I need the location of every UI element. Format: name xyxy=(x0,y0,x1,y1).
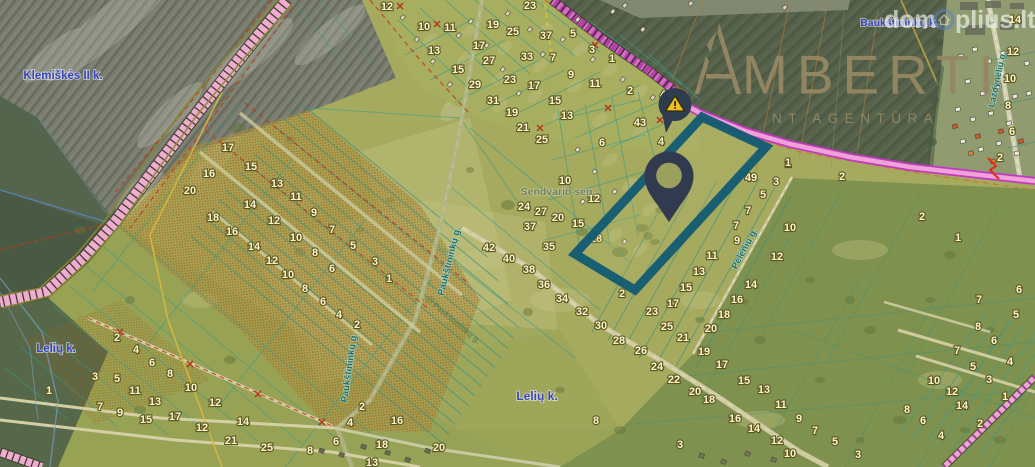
svg-text:20: 20 xyxy=(689,386,701,398)
svg-text:7: 7 xyxy=(550,52,556,64)
svg-text:17: 17 xyxy=(716,359,728,371)
svg-text:10: 10 xyxy=(784,448,796,460)
svg-text:14: 14 xyxy=(745,279,758,291)
svg-text:4: 4 xyxy=(938,430,945,442)
svg-text:3: 3 xyxy=(92,371,98,383)
svg-text:17: 17 xyxy=(169,411,181,423)
svg-text:7: 7 xyxy=(976,294,982,306)
svg-text:21: 21 xyxy=(225,435,237,447)
svg-text:13: 13 xyxy=(271,178,283,190)
svg-text:25: 25 xyxy=(507,26,519,38)
svg-text:23: 23 xyxy=(646,306,658,318)
svg-text:37: 37 xyxy=(540,30,552,42)
svg-text:22: 22 xyxy=(668,374,680,386)
svg-text:Klemiškės II k.: Klemiškės II k. xyxy=(23,70,102,82)
svg-text:18: 18 xyxy=(207,212,219,224)
svg-text:38: 38 xyxy=(523,264,535,276)
svg-text:16: 16 xyxy=(203,168,215,180)
svg-text:12: 12 xyxy=(1007,46,1019,58)
svg-text:6: 6 xyxy=(1009,126,1015,138)
svg-text:3: 3 xyxy=(677,439,683,451)
svg-text:2: 2 xyxy=(919,211,925,223)
svg-text:1: 1 xyxy=(609,53,615,65)
svg-text:15: 15 xyxy=(452,64,464,76)
svg-text:2: 2 xyxy=(619,288,625,300)
svg-text:17: 17 xyxy=(528,80,540,92)
svg-text:16: 16 xyxy=(731,294,743,306)
svg-text:6: 6 xyxy=(333,436,339,448)
svg-text:13: 13 xyxy=(428,45,440,57)
svg-text:11: 11 xyxy=(706,250,718,262)
svg-text:12: 12 xyxy=(196,422,208,434)
svg-text:27: 27 xyxy=(483,55,495,67)
svg-text:35: 35 xyxy=(543,241,555,253)
svg-text:40: 40 xyxy=(503,253,515,265)
svg-text:10: 10 xyxy=(784,222,796,234)
svg-text:12: 12 xyxy=(946,386,958,398)
svg-text:5: 5 xyxy=(1013,309,1019,321)
svg-text:2: 2 xyxy=(839,171,845,183)
svg-text:13: 13 xyxy=(366,457,378,467)
svg-text:24: 24 xyxy=(651,361,664,373)
svg-text:12: 12 xyxy=(209,397,221,409)
svg-text:19: 19 xyxy=(698,346,710,358)
svg-text:6: 6 xyxy=(599,137,605,149)
svg-text:20: 20 xyxy=(552,212,564,224)
svg-text:6: 6 xyxy=(991,335,997,347)
svg-text:25: 25 xyxy=(536,134,548,146)
svg-text:8: 8 xyxy=(307,445,313,457)
svg-text:31: 31 xyxy=(487,95,499,107)
svg-text:8: 8 xyxy=(1005,100,1011,112)
svg-text:12: 12 xyxy=(771,435,783,447)
svg-text:7: 7 xyxy=(812,425,818,437)
svg-text:2: 2 xyxy=(627,85,633,97)
svg-text:15: 15 xyxy=(572,218,584,230)
svg-text:2: 2 xyxy=(977,418,983,430)
svg-text:8: 8 xyxy=(167,368,173,380)
svg-text:Sendvario sen.: Sendvario sen. xyxy=(521,186,596,198)
svg-text:14: 14 xyxy=(956,400,969,412)
svg-text:19: 19 xyxy=(506,107,518,119)
svg-text:2: 2 xyxy=(114,332,120,344)
svg-text:17: 17 xyxy=(222,142,234,154)
svg-text:6: 6 xyxy=(320,296,326,308)
svg-text:4: 4 xyxy=(347,417,354,429)
svg-text:4: 4 xyxy=(1007,356,1014,368)
svg-text:6: 6 xyxy=(920,415,926,427)
svg-text:7: 7 xyxy=(745,205,751,217)
svg-text:4: 4 xyxy=(133,344,140,356)
svg-text:12: 12 xyxy=(268,215,280,227)
svg-text:27: 27 xyxy=(535,206,547,218)
svg-text:9: 9 xyxy=(568,69,574,81)
svg-text:1: 1 xyxy=(1002,391,1008,403)
svg-text:32: 32 xyxy=(576,306,588,318)
svg-text:8: 8 xyxy=(904,404,910,416)
svg-text:33: 33 xyxy=(521,51,533,63)
svg-text:9: 9 xyxy=(311,207,317,219)
svg-text:21: 21 xyxy=(517,122,529,134)
svg-text:20: 20 xyxy=(433,442,445,454)
svg-text:25: 25 xyxy=(261,442,273,454)
svg-text:6: 6 xyxy=(1016,284,1022,296)
svg-text:24: 24 xyxy=(518,201,531,213)
svg-text:3: 3 xyxy=(855,449,861,461)
svg-text:13: 13 xyxy=(149,396,161,408)
svg-text:16: 16 xyxy=(729,413,741,425)
svg-text:18: 18 xyxy=(703,394,715,406)
svg-text:23: 23 xyxy=(524,0,536,12)
svg-text:5: 5 xyxy=(832,436,838,448)
svg-text:23: 23 xyxy=(504,74,516,86)
svg-text:28: 28 xyxy=(613,335,625,347)
svg-text:25: 25 xyxy=(661,321,673,333)
svg-text:19: 19 xyxy=(487,19,499,31)
svg-text:36: 36 xyxy=(538,279,550,291)
svg-text:12: 12 xyxy=(771,251,783,263)
svg-text:7: 7 xyxy=(329,224,335,236)
svg-text:7: 7 xyxy=(954,345,960,357)
svg-text:4: 4 xyxy=(336,309,343,321)
svg-text:16: 16 xyxy=(226,226,238,238)
svg-text:1: 1 xyxy=(955,232,961,244)
svg-text:21: 21 xyxy=(677,332,689,344)
svg-text:8: 8 xyxy=(312,247,318,259)
svg-text:3: 3 xyxy=(986,374,992,386)
svg-text:11: 11 xyxy=(129,385,141,397)
svg-text:11: 11 xyxy=(775,399,787,411)
svg-text:15: 15 xyxy=(680,282,692,294)
svg-text:9: 9 xyxy=(117,407,123,419)
svg-text:11: 11 xyxy=(290,191,302,203)
svg-text:2: 2 xyxy=(359,401,365,413)
svg-text:1: 1 xyxy=(785,157,791,169)
svg-text:13: 13 xyxy=(758,384,770,396)
svg-text:43: 43 xyxy=(634,117,646,129)
svg-text:14: 14 xyxy=(244,199,257,211)
svg-text:7: 7 xyxy=(97,401,103,413)
svg-text:Lelių k.: Lelių k. xyxy=(36,343,76,355)
svg-text:6: 6 xyxy=(329,263,335,275)
svg-text:18: 18 xyxy=(376,439,388,451)
svg-text:3: 3 xyxy=(372,256,378,268)
svg-text:1: 1 xyxy=(46,385,52,397)
svg-text:NT AGENTŪRA: NT AGENTŪRA xyxy=(772,111,939,126)
svg-text:34: 34 xyxy=(556,293,569,305)
svg-text:12: 12 xyxy=(266,255,278,267)
svg-text:10: 10 xyxy=(1004,73,1016,85)
svg-text:3: 3 xyxy=(773,176,779,188)
svg-text:17: 17 xyxy=(667,298,679,310)
svg-text:10: 10 xyxy=(282,269,294,281)
svg-text:14: 14 xyxy=(248,241,261,253)
svg-text:Lelių k.: Lelių k. xyxy=(516,389,557,403)
svg-text:15: 15 xyxy=(245,161,257,173)
svg-text:9: 9 xyxy=(796,413,802,425)
svg-text:9: 9 xyxy=(734,235,740,247)
svg-text:8: 8 xyxy=(975,321,981,333)
svg-text:42: 42 xyxy=(483,242,495,254)
svg-text:8: 8 xyxy=(302,283,308,295)
svg-text:plius.lt: plius.lt xyxy=(955,6,1035,34)
svg-text:20: 20 xyxy=(705,323,717,335)
svg-text:2: 2 xyxy=(997,152,1003,164)
svg-text:15: 15 xyxy=(738,375,750,387)
svg-text:17: 17 xyxy=(473,40,485,52)
svg-text:5: 5 xyxy=(350,240,356,252)
svg-text:14: 14 xyxy=(237,416,250,428)
svg-text:11: 11 xyxy=(444,22,456,34)
svg-text:5: 5 xyxy=(570,28,576,40)
svg-text:dom: dom xyxy=(884,6,937,34)
svg-text:1: 1 xyxy=(386,273,392,285)
svg-text:15: 15 xyxy=(140,414,152,426)
svg-text:10: 10 xyxy=(185,382,197,394)
svg-text:3: 3 xyxy=(589,44,595,56)
svg-text:11: 11 xyxy=(589,78,601,90)
svg-text:20: 20 xyxy=(184,185,196,197)
svg-text:15: 15 xyxy=(549,95,561,107)
svg-text:4: 4 xyxy=(658,136,665,148)
svg-text:10: 10 xyxy=(290,232,302,244)
svg-text:26: 26 xyxy=(635,345,647,357)
svg-text:5: 5 xyxy=(114,373,120,385)
svg-text:37: 37 xyxy=(524,221,536,233)
svg-text:13: 13 xyxy=(693,266,705,278)
svg-text:16: 16 xyxy=(391,415,403,427)
svg-text:10: 10 xyxy=(418,21,430,33)
svg-text:7: 7 xyxy=(733,220,739,232)
svg-text:30: 30 xyxy=(595,320,607,332)
svg-text:6: 6 xyxy=(149,357,155,369)
svg-text:5: 5 xyxy=(760,189,766,201)
svg-text:29: 29 xyxy=(469,79,481,91)
svg-text:MBERTI: MBERTI xyxy=(742,44,1003,106)
svg-text:8: 8 xyxy=(593,415,599,427)
svg-text:2: 2 xyxy=(354,319,360,331)
svg-text:5: 5 xyxy=(970,361,976,373)
svg-text:12: 12 xyxy=(381,1,393,13)
svg-text:13: 13 xyxy=(561,110,573,122)
svg-text:14: 14 xyxy=(748,423,761,435)
svg-text:18: 18 xyxy=(718,309,730,321)
svg-text:10: 10 xyxy=(928,375,940,387)
